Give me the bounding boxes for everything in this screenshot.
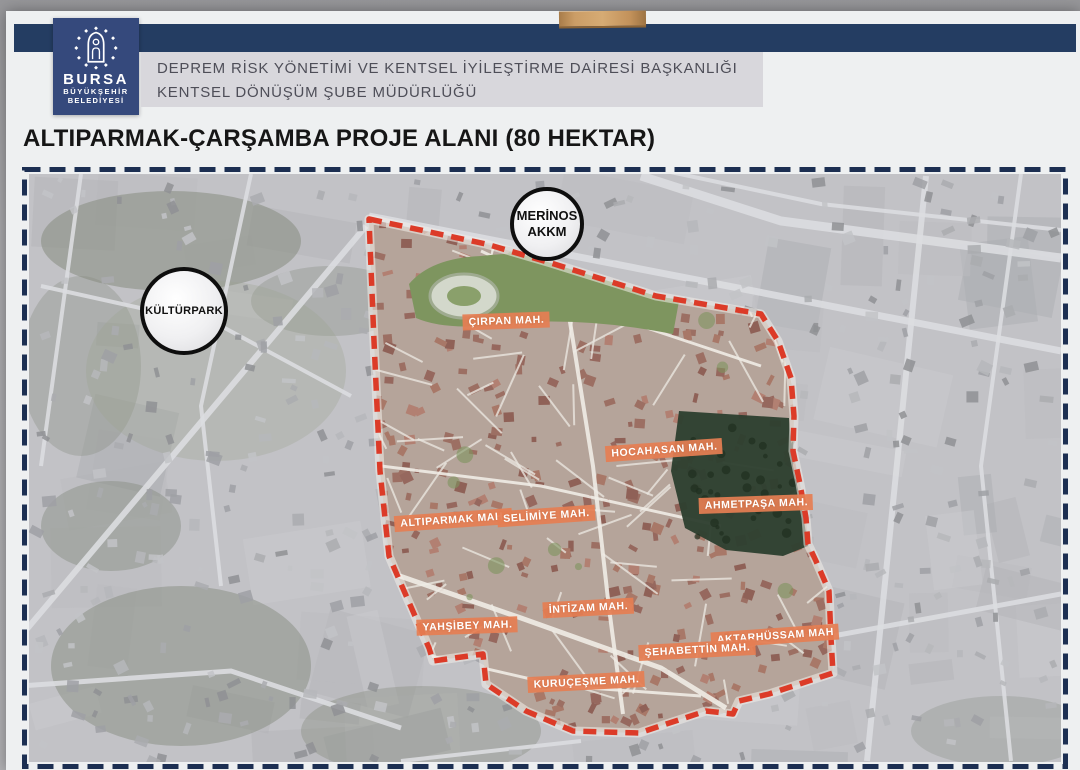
landmark-kulturpark: KÜLTÜRPARK (140, 267, 228, 355)
logo-text-buyuksehir: BÜYÜKŞEHİR (63, 87, 129, 96)
bursa-emblem-icon (70, 24, 122, 72)
logo-text-bursa: BURSA (63, 72, 129, 87)
department-line1: DEPREM RİSK YÖNETİMİ VE KENTSEL İYİLEŞTİ… (157, 57, 763, 81)
landmark-merinos-akkm: MERİNOS AKKM (510, 187, 584, 261)
landmark-merinos-line2: AKKM (528, 224, 567, 240)
landmark-kulturpark-line1: KÜLTÜRPARK (145, 305, 223, 317)
municipality-logo: BURSA BÜYÜKŞEHİR BELEDİYESİ (53, 18, 139, 115)
header-navy-bar (14, 24, 1076, 52)
clothespin (559, 11, 646, 29)
logo-text-belediyesi: BELEDİYESİ (68, 96, 125, 105)
poster-sheet: BURSA BÜYÜKŞEHİR BELEDİYESİ DEPREM RİSK … (6, 11, 1080, 770)
district-label-cirpan: ÇIRPAN MAH. (462, 311, 549, 330)
page-title: ALTIPARMAK-ÇARŞAMBA PROJE ALANI (80 HEKT… (23, 125, 655, 153)
photographed-poster: BURSA BÜYÜKŞEHİR BELEDİYESİ DEPREM RİSK … (0, 0, 1080, 770)
landmark-merinos-line1: MERİNOS (517, 208, 578, 224)
department-line2: KENTSEL DÖNÜŞÜM ŞUBE MÜDÜRLÜĞÜ (157, 81, 763, 105)
project-map: MERİNOS AKKM KÜLTÜRPARK ÇIRPAN MAH. HOCA… (21, 166, 1069, 770)
department-band: DEPREM RİSK YÖNETİMİ VE KENTSEL İYİLEŞTİ… (141, 52, 763, 107)
